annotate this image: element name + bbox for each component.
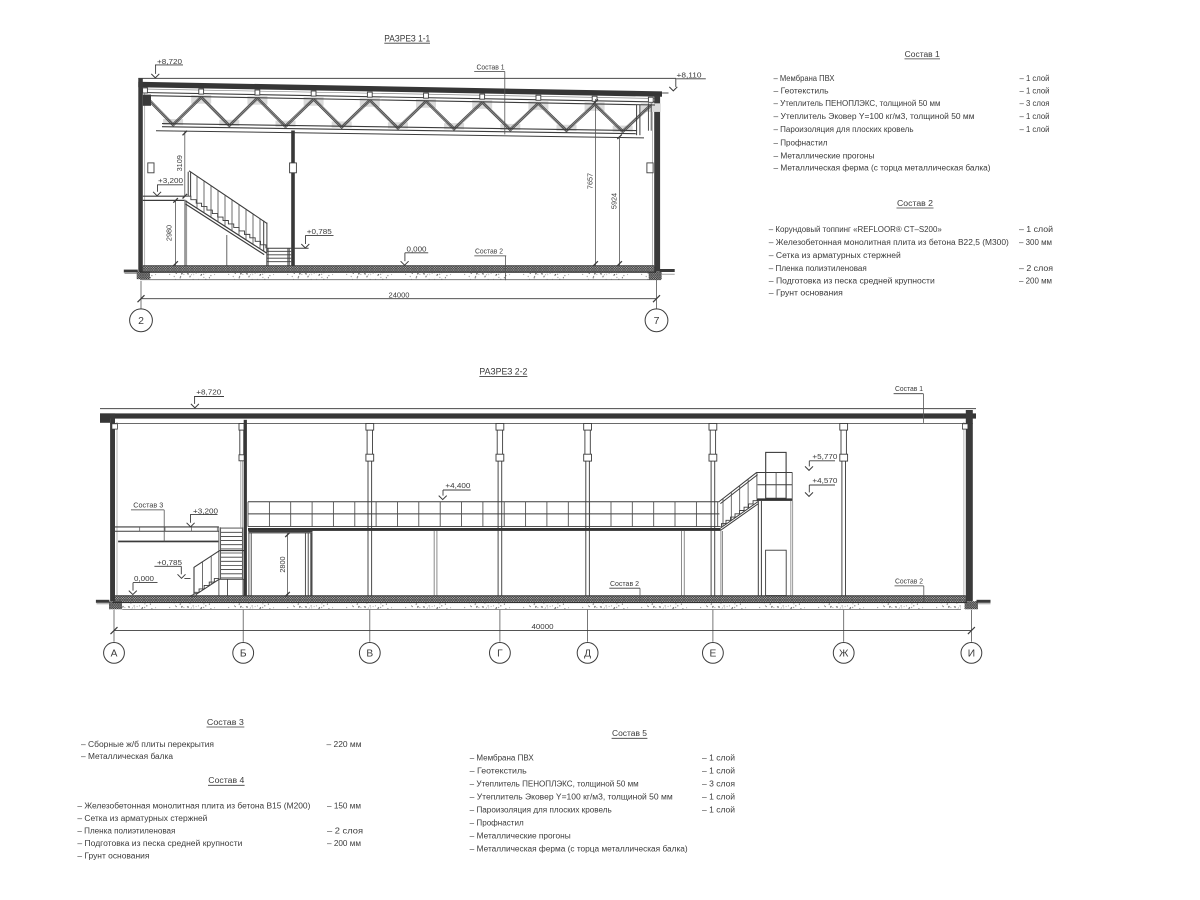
- svg-text:Состав 2: Состав 2: [475, 246, 503, 255]
- svg-text:Состав 1: Состав 1: [905, 50, 941, 59]
- svg-text:7657: 7657: [585, 173, 594, 189]
- svg-text:Е: Е: [710, 649, 717, 660]
- svg-text:– 1 слой: – 1 слой: [702, 806, 735, 815]
- svg-text:– Сетка из арматурных стержне: – Сетка из арматурных стержней: [77, 814, 207, 823]
- svg-text:– 2 слоя: – 2 слоя: [327, 827, 363, 836]
- svg-text:Б: Б: [240, 649, 247, 660]
- svg-text:0,000: 0,000: [407, 244, 427, 253]
- svg-text:– Профнастил: – Профнастил: [774, 139, 828, 148]
- svg-text:– Металлические прогоны: – Металлические прогоны: [774, 152, 875, 161]
- svg-text:Состав 3: Состав 3: [207, 718, 245, 727]
- svg-text:– 3 слоя: – 3 слоя: [1020, 99, 1050, 108]
- svg-text:40000: 40000: [532, 622, 554, 631]
- svg-text:РАЗРЕЗ 1-1: РАЗРЕЗ 1-1: [384, 33, 430, 44]
- svg-text:+3,200: +3,200: [158, 176, 183, 185]
- svg-text:Г: Г: [497, 649, 503, 660]
- svg-text:Состав 1: Состав 1: [895, 384, 923, 393]
- svg-text:– Мембрана ПВХ: – Мембрана ПВХ: [774, 74, 836, 83]
- svg-text:– 220 мм: – 220 мм: [327, 740, 362, 749]
- svg-text:– 300 мм: – 300 мм: [1019, 238, 1052, 247]
- svg-text:– 1 слой: – 1 слой: [1020, 125, 1050, 134]
- svg-text:+8,720: +8,720: [196, 388, 221, 397]
- svg-text:+5,770: +5,770: [812, 452, 837, 461]
- svg-text:– Утеплитель ПЕНОПЛЭКС, толщи: – Утеплитель ПЕНОПЛЭКС, толщиной 50 мм: [470, 780, 639, 789]
- svg-text:2980: 2980: [164, 225, 173, 241]
- svg-text:– 1 слой: – 1 слой: [702, 767, 735, 776]
- svg-text:– 1 слой: – 1 слой: [1020, 112, 1050, 121]
- svg-text:0,000: 0,000: [134, 574, 154, 583]
- svg-text:3109: 3109: [175, 155, 184, 171]
- svg-text:– Мембрана ПВХ: – Мембрана ПВХ: [470, 754, 535, 763]
- svg-text:– Утеплитель Эковер Y=100 кг/: – Утеплитель Эковер Y=100 кг/м3, толщино…: [774, 112, 975, 121]
- svg-text:– 2 слоя: – 2 слоя: [1019, 264, 1053, 273]
- svg-text:+4,400: +4,400: [445, 481, 470, 490]
- svg-text:+8,110: +8,110: [677, 71, 702, 80]
- svg-text:– 200 мм: – 200 мм: [327, 839, 361, 848]
- svg-text:– Металлические прогоны: – Металлические прогоны: [470, 832, 571, 841]
- svg-text:– Сетка из арматурных стержне: – Сетка из арматурных стержней: [769, 251, 901, 260]
- svg-text:Состав 5: Состав 5: [612, 729, 648, 738]
- svg-text:– Металлическая ферма (с торц: – Металлическая ферма (с торца металличе…: [470, 845, 688, 854]
- svg-text:РАЗРЕЗ 2-2: РАЗРЕЗ 2-2: [479, 366, 527, 377]
- svg-text:И: И: [968, 649, 975, 660]
- svg-text:– Профнастил: – Профнастил: [470, 819, 524, 828]
- svg-text:– Сборные ж/б плиты перекрыти: – Сборные ж/б плиты перекрытия: [81, 740, 214, 749]
- svg-text:24000: 24000: [389, 290, 410, 299]
- svg-text:– 3 слоя: – 3 слоя: [702, 780, 735, 789]
- svg-text:Ж: Ж: [839, 649, 849, 660]
- svg-text:– Грунт основания: – Грунт основания: [77, 851, 149, 860]
- svg-text:– 1 слой: – 1 слой: [702, 793, 735, 802]
- svg-text:– Утеплитель Эковер Y=100 кг/: – Утеплитель Эковер Y=100 кг/м3, толщино…: [470, 793, 673, 802]
- svg-text:+4,570: +4,570: [812, 476, 837, 485]
- svg-text:+0,785: +0,785: [307, 227, 332, 236]
- svg-text:В: В: [366, 649, 373, 660]
- svg-text:– Пленка полиэтиленовая: – Пленка полиэтиленовая: [769, 264, 867, 273]
- svg-text:Состав 2: Состав 2: [897, 199, 934, 208]
- svg-text:– Железобетонная монолитная: – Железобетонная монолитная плита из бет…: [769, 238, 1009, 247]
- svg-text:А: А: [111, 649, 118, 660]
- svg-text:– Утеплитель ПЕНОПЛЭКС, толщи: – Утеплитель ПЕНОПЛЭКС, толщиной 50 мм: [774, 99, 941, 108]
- svg-text:– Пароизоляция для плоских кр: – Пароизоляция для плоских кровель: [470, 806, 612, 815]
- svg-text:Состав 2: Состав 2: [610, 579, 639, 588]
- svg-text:– Геотекстиль: – Геотекстиль: [774, 87, 829, 96]
- svg-text:– 1 слой: – 1 слой: [1019, 225, 1053, 234]
- svg-text:– Металлическая ферма (с торц: – Металлическая ферма (с торца металличе…: [774, 164, 991, 173]
- svg-text:7: 7: [654, 315, 660, 327]
- svg-text:2800: 2800: [278, 556, 287, 572]
- svg-text:– Подготовка из песка средней: – Подготовка из песка средней крупности: [77, 839, 242, 848]
- svg-text:+0,785: +0,785: [157, 558, 182, 567]
- svg-text:– Грунт основания: – Грунт основания: [769, 289, 843, 298]
- svg-text:– 150 мм: – 150 мм: [327, 802, 361, 811]
- svg-text:– Подготовка из песка средней: – Подготовка из песка средней крупности: [769, 277, 935, 286]
- svg-text:5924: 5924: [609, 193, 618, 209]
- svg-text:– Пароизоляция для плоских кр: – Пароизоляция для плоских кровель: [774, 125, 914, 134]
- svg-text:– 1 слой: – 1 слой: [702, 754, 735, 763]
- svg-text:– 1 слой: – 1 слой: [1020, 74, 1050, 83]
- svg-text:Состав 2: Состав 2: [895, 577, 923, 586]
- svg-text:– Железобетонная монолитная: – Железобетонная монолитная плита из бет…: [77, 802, 310, 811]
- svg-text:– Пленка полиэтиленовая: – Пленка полиэтиленовая: [77, 827, 175, 836]
- svg-text:Д: Д: [584, 649, 591, 660]
- svg-text:– 200 мм: – 200 мм: [1019, 277, 1052, 286]
- svg-text:– Геотекстиль: – Геотекстиль: [470, 767, 527, 776]
- svg-text:– Металлическая балка: – Металлическая балка: [81, 752, 174, 761]
- svg-text:– Корундовый топпинг «REFLOOR: – Корундовый топпинг «REFLOOR® CT–S200»: [769, 225, 943, 234]
- svg-text:Состав 3: Состав 3: [133, 501, 163, 510]
- svg-text:2: 2: [138, 315, 144, 327]
- svg-text:Состав 4: Состав 4: [208, 776, 245, 785]
- svg-text:Состав 1: Состав 1: [477, 62, 505, 71]
- svg-text:– 1 слой: – 1 слой: [1020, 87, 1050, 96]
